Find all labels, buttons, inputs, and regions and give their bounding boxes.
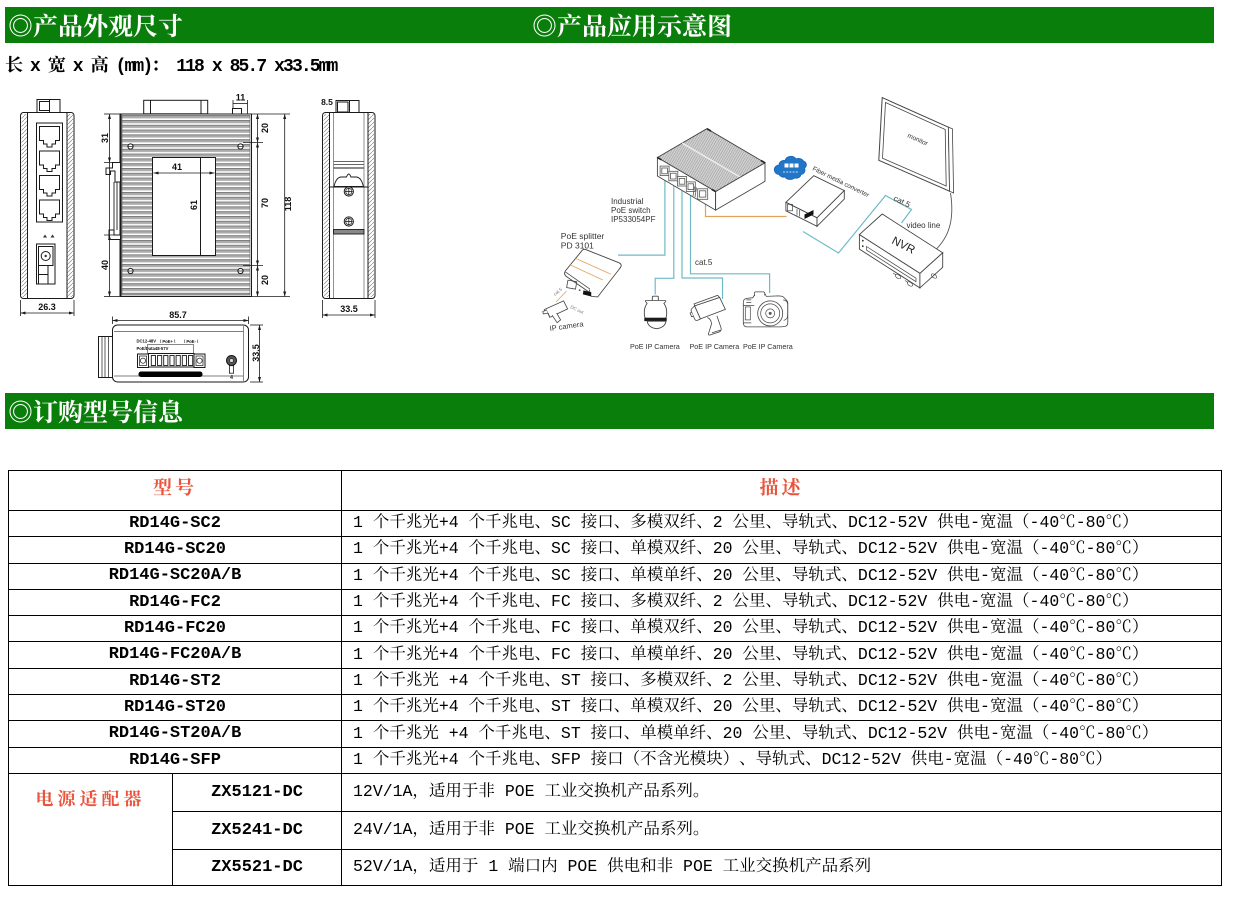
svg-text:8.5: 8.5 bbox=[321, 97, 333, 107]
svg-text:20: 20 bbox=[260, 275, 270, 285]
svg-text:cat.5: cat.5 bbox=[892, 194, 912, 210]
svg-text:40: 40 bbox=[100, 260, 110, 270]
svg-text:Industrial: Industrial bbox=[611, 197, 644, 206]
svg-text:IP533054PF: IP533054PF bbox=[611, 215, 656, 224]
svg-text:video line: video line bbox=[907, 221, 941, 230]
svg-text:/ PoE+ \: / PoE+ \ bbox=[160, 339, 176, 344]
svg-text:PD 3101: PD 3101 bbox=[561, 241, 594, 251]
svg-text:33.5: 33.5 bbox=[251, 344, 261, 362]
svg-text:26.3: 26.3 bbox=[38, 302, 56, 312]
svg-text:85.7: 85.7 bbox=[169, 310, 187, 320]
svg-text:11: 11 bbox=[236, 93, 246, 103]
svg-text:IP camera: IP camera bbox=[549, 319, 585, 333]
svg-text:PoE splitter: PoE splitter bbox=[561, 231, 605, 241]
svg-text:/ PoE- \: / PoE- \ bbox=[184, 339, 199, 344]
svg-text:cat.5: cat.5 bbox=[695, 258, 713, 267]
svg-text:cat.5: cat.5 bbox=[552, 286, 563, 296]
svg-text:4: 4 bbox=[230, 375, 233, 381]
svg-text:33.5: 33.5 bbox=[340, 304, 358, 314]
svg-text:31: 31 bbox=[100, 133, 110, 143]
svg-text:41: 41 bbox=[172, 162, 182, 172]
svg-text:PoE switch: PoE switch bbox=[611, 206, 651, 215]
svg-text:PoE IP Camera: PoE IP Camera bbox=[630, 342, 680, 351]
svg-text:61: 61 bbox=[189, 200, 199, 210]
svg-text:PoE/Data48-57V: PoE/Data48-57V bbox=[137, 346, 169, 351]
svg-text:20: 20 bbox=[260, 123, 270, 133]
svg-text:70: 70 bbox=[260, 198, 270, 208]
svg-text:DC12-48V: DC12-48V bbox=[137, 339, 157, 344]
svg-text:PoE IP Camera: PoE IP Camera bbox=[690, 342, 740, 351]
svg-text:118: 118 bbox=[283, 197, 293, 212]
svg-text:PoE IP Camera: PoE IP Camera bbox=[743, 342, 793, 351]
svg-text:DC out: DC out bbox=[570, 304, 585, 315]
